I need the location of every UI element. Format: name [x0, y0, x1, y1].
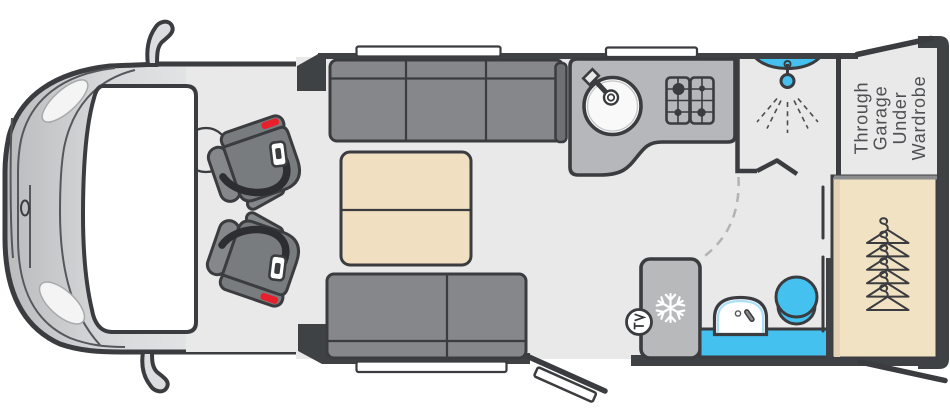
svg-text:ThroughGarageUnderWardrobe: ThroughGarageUnderWardrobe	[852, 76, 930, 161]
